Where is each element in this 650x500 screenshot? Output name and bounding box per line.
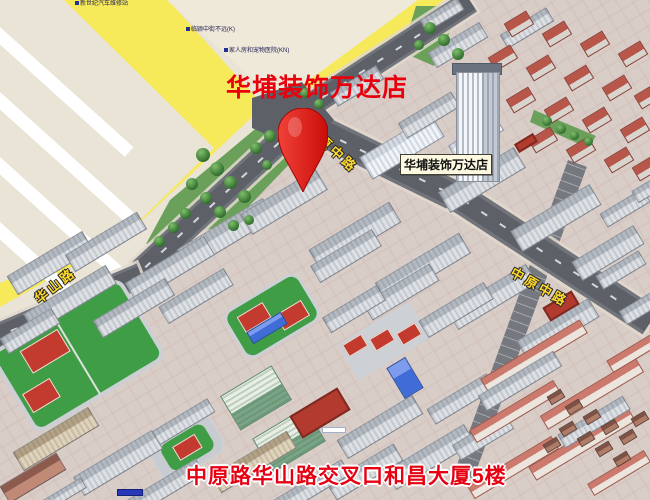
tree-icon [196, 148, 210, 162]
tree-icon [224, 176, 237, 189]
tree-icon [584, 137, 593, 146]
tree-icon [424, 22, 436, 34]
poi-label[interactable]: 新世纪汽车维修站 [75, 1, 128, 8]
location-pin-icon[interactable] [278, 108, 328, 192]
tree-icon [244, 215, 254, 225]
tree-icon [542, 116, 552, 126]
tree-icon [180, 208, 191, 219]
poi-label[interactable]: 临颍中街不远(K) [186, 27, 235, 34]
tree-icon [238, 190, 251, 203]
tree-icon [570, 131, 579, 140]
tree-icon [414, 40, 424, 50]
store-title: 华埔装饰万达店 [226, 68, 408, 104]
mini-sign [117, 489, 143, 496]
poi-label[interactable]: 家人房和宠物医院(KN) [224, 48, 289, 55]
tree-icon [210, 162, 224, 176]
marker-label[interactable]: 华埔装饰万达店 [400, 154, 492, 175]
tree-icon [556, 124, 566, 134]
map-canvas[interactable]: 华埔装饰万达店 华埔装饰万达店 华山路 原中路 中原中路 中原路华山路交叉口和昌… [0, 0, 650, 500]
address-caption: 中原路华山路交叉口和昌大厦5楼 [186, 460, 507, 490]
mini-banner [322, 427, 346, 433]
tree-icon [186, 178, 198, 190]
tree-icon [452, 48, 464, 60]
tree-icon [154, 236, 165, 247]
tree-icon [228, 220, 239, 231]
tree-icon [214, 206, 226, 218]
tree-icon [200, 192, 212, 204]
tree-icon [438, 34, 450, 46]
tree-icon [262, 160, 272, 170]
tree-icon [264, 130, 276, 142]
tree-icon [168, 222, 179, 233]
tree-icon [250, 142, 262, 154]
